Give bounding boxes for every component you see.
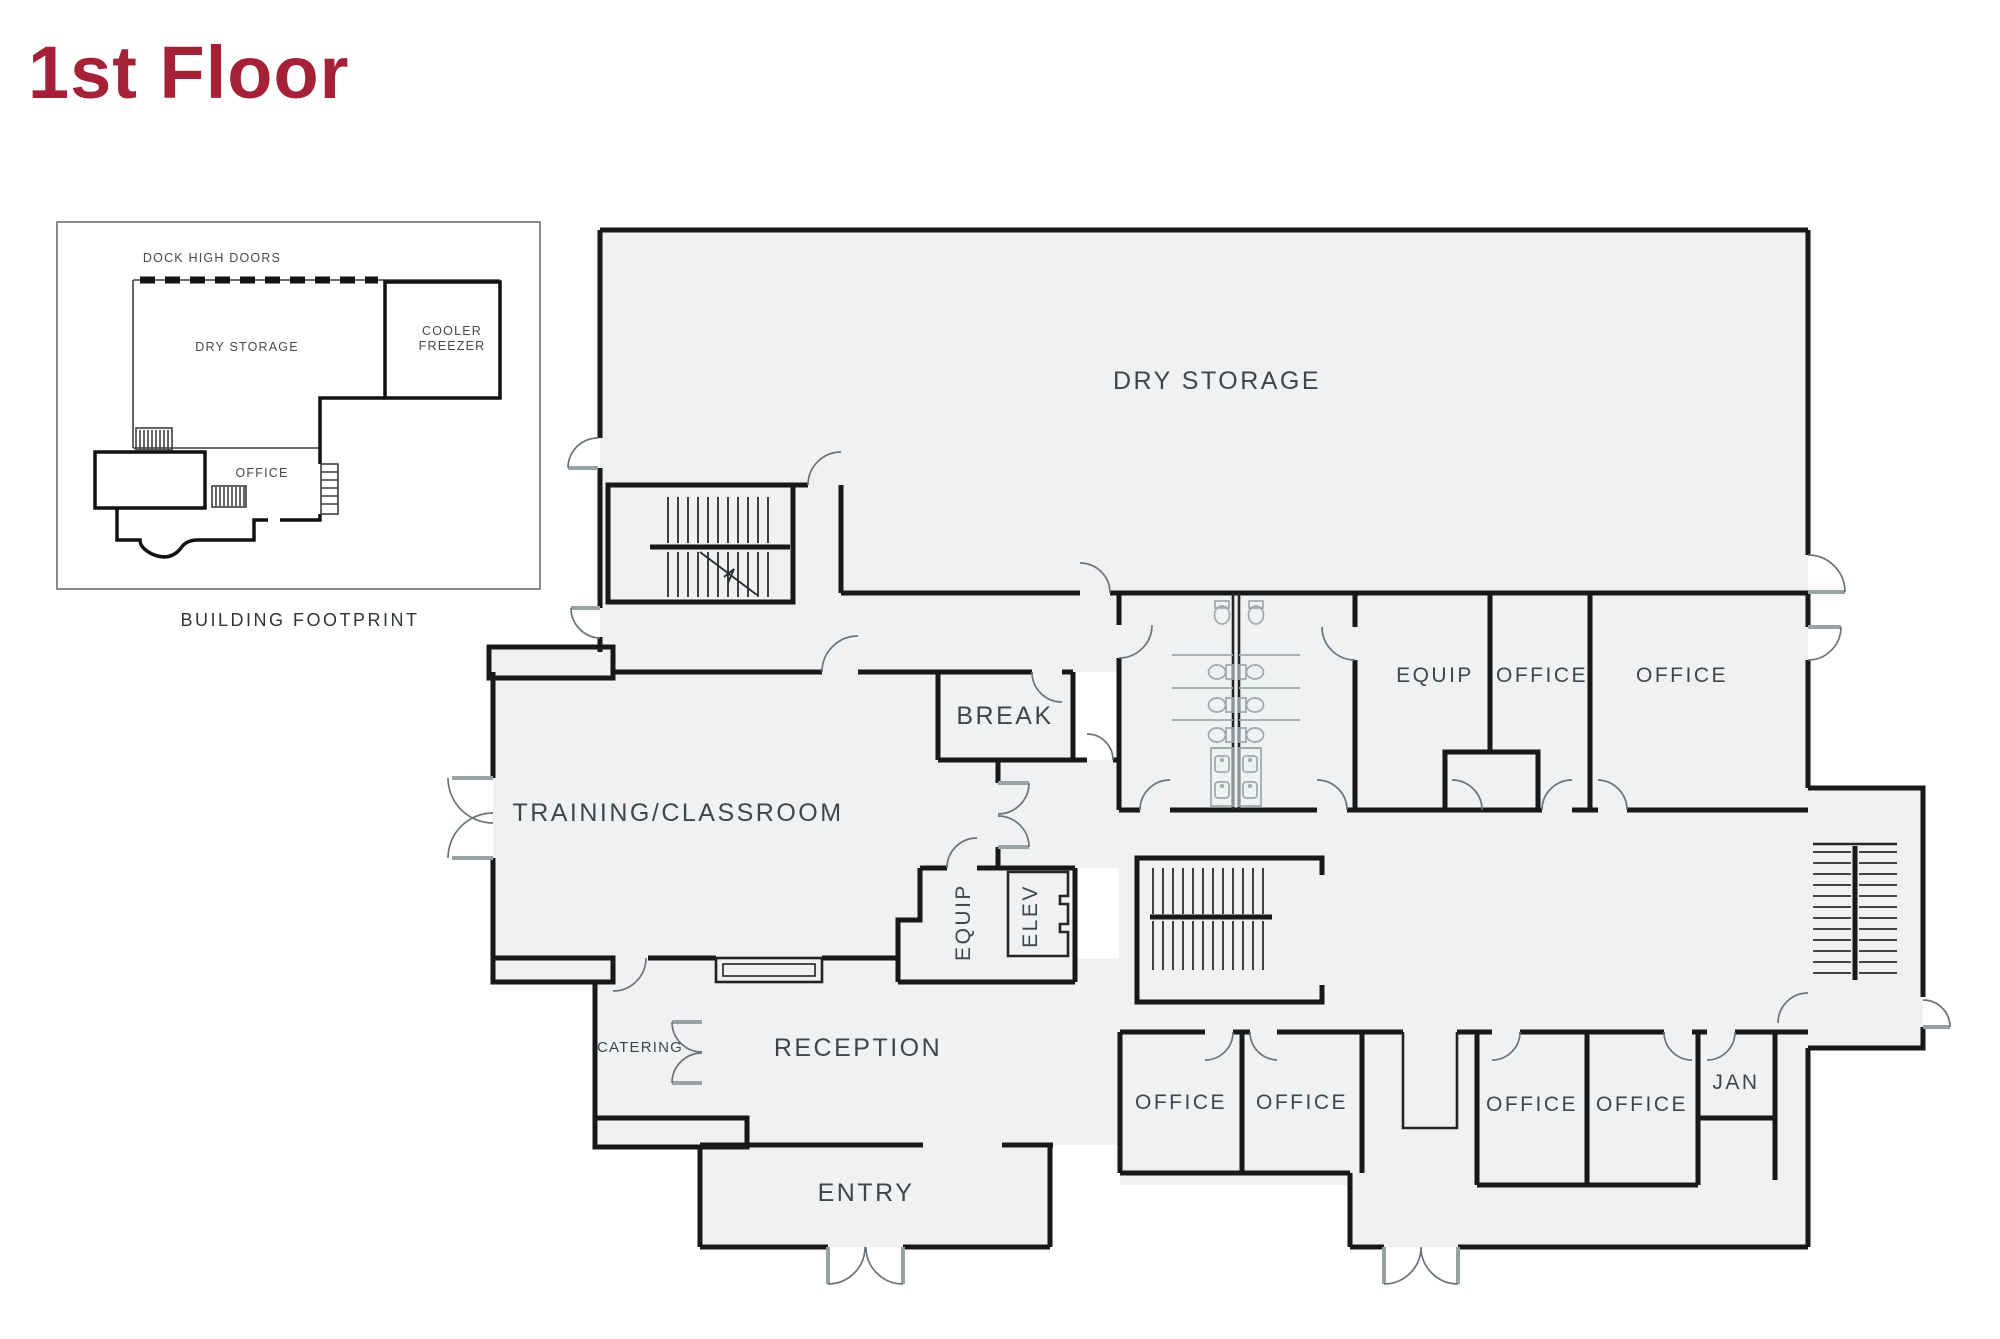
label-dry-storage: DRY STORAGE xyxy=(1113,367,1321,395)
inset-caption: BUILDING FOOTPRINT xyxy=(180,610,419,630)
label-entry: ENTRY xyxy=(818,1179,915,1207)
reception-counter xyxy=(716,958,822,982)
building-footprint-inset: DOCK HIGH DOORS DRY STORAGE COOLER FREEZ… xyxy=(57,222,540,630)
label-office: OFFICE xyxy=(1256,1091,1348,1114)
inset-office-label: OFFICE xyxy=(235,466,288,480)
inset-office-room xyxy=(95,452,205,508)
label-elevator: ELEV xyxy=(1019,884,1042,948)
label-reception: RECEPTION xyxy=(774,1034,942,1062)
label-office: OFFICE xyxy=(1496,664,1588,687)
inset-cooler-label-1: COOLER xyxy=(422,324,482,338)
label-break: BREAK xyxy=(956,702,1053,730)
inset-cooler-label-2: FREEZER xyxy=(419,339,486,353)
label-office: OFFICE xyxy=(1596,1093,1688,1116)
inset-dry-storage-label: DRY STORAGE xyxy=(195,340,299,354)
label-equip-row: EQUIP xyxy=(1396,664,1474,687)
label-training-classroom: TRAINING/CLASSROOM xyxy=(512,799,843,827)
label-office: OFFICE xyxy=(1636,664,1728,687)
label-catering: CATERING xyxy=(597,1039,683,1056)
page-title: 1st Floor xyxy=(28,31,349,114)
label-office: OFFICE xyxy=(1135,1091,1227,1114)
label-equip-core: EQUIP xyxy=(952,883,975,961)
inset-dock-label: DOCK HIGH DOORS xyxy=(143,251,281,265)
label-jan: JAN xyxy=(1712,1071,1759,1094)
floor-plan: 1st Floor DOCK HIGH DOORS DRY STORAGE CO… xyxy=(0,0,2000,1339)
label-office: OFFICE xyxy=(1486,1093,1578,1116)
